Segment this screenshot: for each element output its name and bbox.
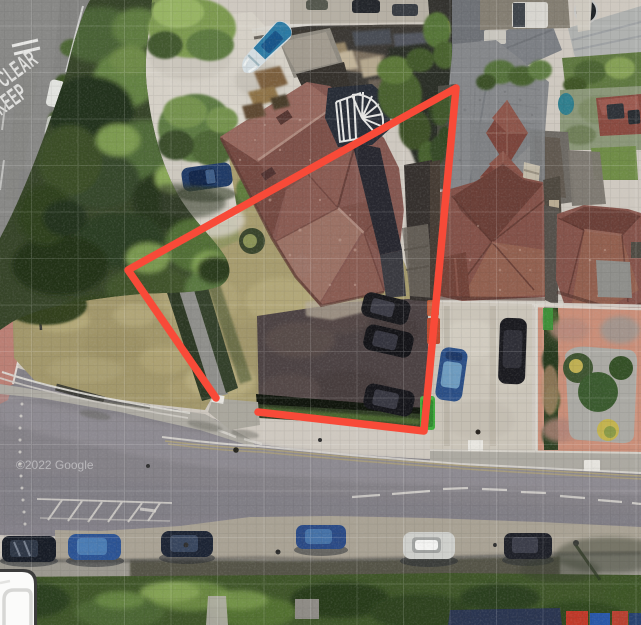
svg-text:©2022 Google: ©2022 Google bbox=[16, 458, 94, 472]
